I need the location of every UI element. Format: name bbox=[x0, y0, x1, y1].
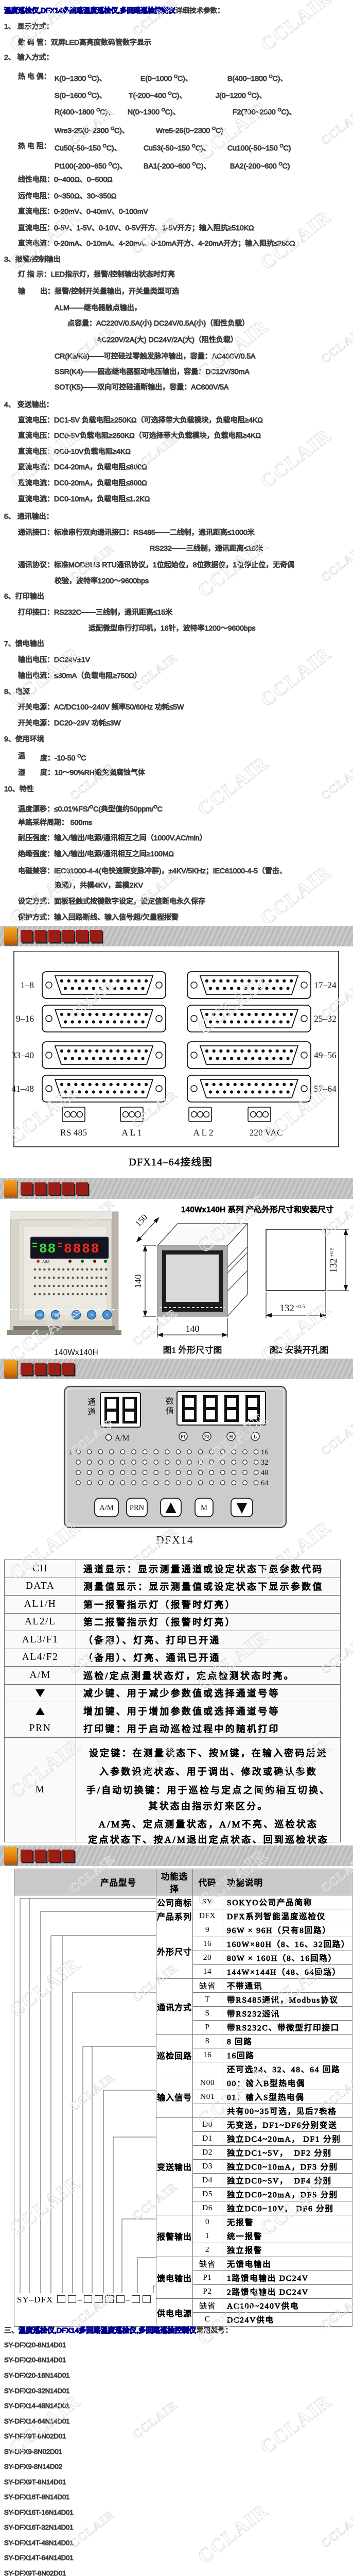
svg-text:DFX14: DFX14 bbox=[156, 1534, 193, 1546]
svg-text:220 VAC: 220 VAC bbox=[249, 1127, 283, 1138]
svg-text:1: 1 bbox=[69, 1449, 73, 1456]
svg-text:PRN: PRN bbox=[52, 1314, 59, 1317]
svg-text:通: 通 bbox=[87, 1398, 96, 1407]
svg-text:9–16: 9–16 bbox=[16, 1013, 34, 1024]
svg-text:值: 值 bbox=[166, 1406, 174, 1416]
svg-text:16: 16 bbox=[261, 1448, 269, 1456]
svg-text:8888: 8888 bbox=[64, 1241, 100, 1257]
svg-text:A L 2: A L 2 bbox=[193, 1127, 213, 1138]
svg-text:25–32: 25–32 bbox=[314, 1013, 337, 1024]
svg-text:M: M bbox=[201, 1504, 207, 1512]
svg-text:DFX14–64接线图: DFX14–64接线图 bbox=[129, 1157, 213, 1168]
svg-text:140Wx140H 系列 产品外形尺寸和安装尺寸: 140Wx140H 系列 产品外形尺寸和安装尺寸 bbox=[181, 1205, 334, 1214]
svg-text:140: 140 bbox=[186, 1324, 200, 1334]
svg-text:F2: F2 bbox=[204, 1434, 210, 1440]
svg-text:道: 道 bbox=[87, 1408, 96, 1417]
svg-text:132 +0.5: 132 +0.5 bbox=[279, 1303, 305, 1314]
svg-text:57–64: 57–64 bbox=[314, 1083, 337, 1094]
svg-text:33–40: 33–40 bbox=[11, 1050, 34, 1060]
svg-text:32: 32 bbox=[261, 1459, 269, 1467]
svg-text:41–48: 41–48 bbox=[11, 1083, 34, 1094]
svg-text:RS 485: RS 485 bbox=[60, 1127, 87, 1138]
svg-text:A L 1: A L 1 bbox=[121, 1127, 142, 1138]
svg-text:▼: ▼ bbox=[105, 1314, 109, 1317]
svg-text:A/M: A/M bbox=[37, 1314, 43, 1317]
svg-text:150: 150 bbox=[133, 1212, 149, 1229]
svg-text:140: 140 bbox=[133, 1275, 143, 1289]
svg-text:48: 48 bbox=[261, 1469, 269, 1477]
svg-text:132 +0.5: 132 +0.5 bbox=[328, 1247, 339, 1273]
svg-text:图1 外形尺寸图: 图1 外形尺寸图 bbox=[163, 1345, 222, 1355]
svg-text:140Wx140H: 140Wx140H bbox=[54, 1348, 98, 1357]
svg-text:▲: ▲ bbox=[75, 1314, 78, 1317]
svg-text:L: L bbox=[254, 1434, 257, 1440]
svg-text:49–56: 49–56 bbox=[314, 1050, 337, 1060]
svg-text:M: M bbox=[91, 1314, 93, 1317]
svg-text:A/M: A/M bbox=[115, 1434, 129, 1443]
svg-text:F1: F1 bbox=[181, 1434, 186, 1440]
svg-text:88: 88 bbox=[39, 1241, 56, 1257]
svg-text:1–8: 1–8 bbox=[21, 980, 34, 990]
svg-text:64: 64 bbox=[261, 1479, 269, 1487]
svg-text:图2 安装开孔图: 图2 安装开孔图 bbox=[270, 1345, 329, 1355]
svg-text:A/M: A/M bbox=[42, 1260, 50, 1264]
svg-text:H: H bbox=[229, 1434, 233, 1440]
svg-text:数: 数 bbox=[166, 1397, 174, 1406]
svg-text:PRN: PRN bbox=[130, 1504, 145, 1512]
svg-text:A/M: A/M bbox=[99, 1504, 114, 1512]
svg-text:17–24: 17–24 bbox=[314, 980, 337, 990]
